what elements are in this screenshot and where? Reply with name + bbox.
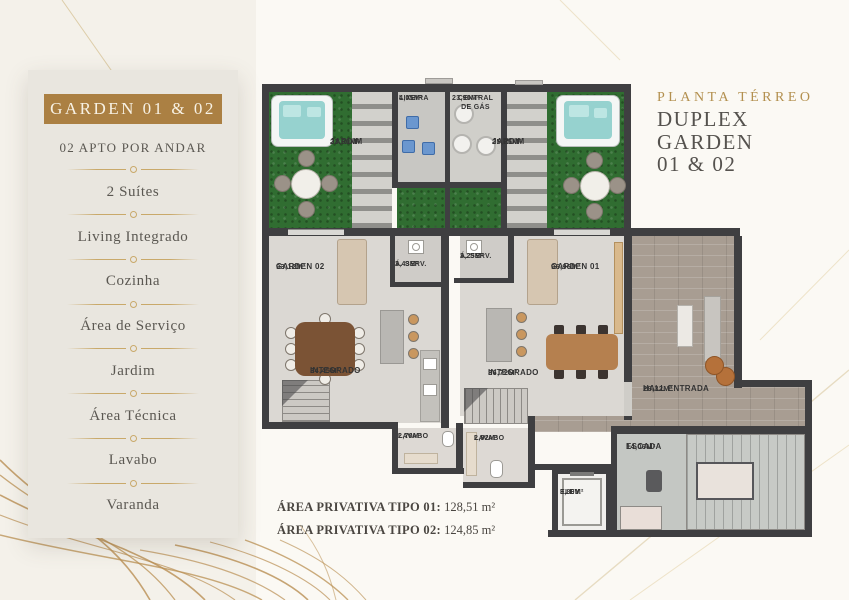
feature-item: Living Integrado (78, 229, 189, 246)
divider-ornament (67, 256, 198, 263)
elevator-door (570, 472, 594, 476)
wall (456, 423, 463, 473)
feature-item: Jardim (111, 363, 155, 380)
wall (805, 380, 812, 537)
garden-path-left (352, 92, 392, 229)
washing-machine (408, 240, 424, 254)
garden-chair (563, 177, 580, 194)
sideboard (614, 242, 623, 334)
wall (742, 380, 812, 387)
page: GARDEN 01 & 02 02 APTO POR ANDAR 2 Suíte… (0, 0, 849, 600)
divider-ornament (67, 211, 198, 218)
stool (516, 346, 527, 357)
garden-chair (321, 175, 338, 192)
divider-ornament (67, 390, 198, 397)
feature-item: 2 Suítes (107, 184, 160, 201)
feature-item: Cozinha (106, 273, 160, 290)
feature-item: Varanda (106, 497, 159, 514)
kitchen-island (380, 310, 404, 364)
door-gap (624, 382, 632, 416)
elevator-cab (562, 478, 602, 526)
hot-tub (271, 95, 333, 147)
sink (423, 358, 437, 370)
bench (677, 305, 693, 347)
wall (624, 84, 631, 236)
wall (392, 90, 398, 188)
floor-plan: JARDIM23,90M² LIXEIRA4,05M² CENTRAL DE G… (258, 82, 814, 544)
stairlift-icon (646, 470, 662, 492)
stair-landing (696, 462, 754, 500)
wall (262, 422, 398, 429)
door-gap (554, 229, 610, 235)
garden-chair (298, 201, 315, 218)
stool (408, 331, 419, 342)
console (704, 296, 721, 362)
room-lixeira (397, 90, 445, 184)
door-gap (288, 229, 344, 235)
dining-chair (598, 369, 608, 379)
garden-chair (298, 150, 315, 167)
garden-chair (274, 175, 291, 192)
private-area-summary: ÁREA PRIVATIVA TIPO 01: 128,51 m² ÁREA P… (277, 496, 495, 542)
dining-chair (576, 369, 586, 379)
garden-path-right (507, 92, 547, 229)
feature-item: Área Técnica (89, 408, 176, 425)
grass-patch-right (450, 188, 501, 229)
sofa (337, 239, 367, 305)
divider-ornament (67, 345, 198, 352)
stool (408, 314, 419, 325)
dining-chair (554, 369, 564, 379)
pouf (705, 356, 724, 375)
wall (528, 416, 535, 488)
wall (552, 468, 558, 534)
garden-chair (586, 152, 603, 169)
vanity (404, 453, 438, 464)
divider-ornament (67, 435, 198, 442)
stair-landing (620, 506, 662, 530)
kitchen-island (486, 308, 512, 362)
wall-cap (515, 80, 543, 85)
stool (516, 329, 527, 340)
feature-item: Lavabo (109, 452, 158, 469)
wall (392, 422, 398, 472)
wall (611, 426, 805, 434)
private-area-line-2: ÁREA PRIVATIVA TIPO 02: 124,85 m² (277, 519, 495, 542)
private-area-line-1: ÁREA PRIVATIVA TIPO 01: 128,51 m² (277, 496, 495, 519)
trash-bin (406, 116, 419, 129)
wall (445, 90, 450, 188)
divider-ornament (67, 166, 198, 173)
grass-patch-left (397, 188, 445, 229)
divider-ornament (67, 301, 198, 308)
wall (392, 468, 464, 474)
wall (454, 278, 514, 283)
garden-table (580, 171, 610, 201)
stool (516, 312, 527, 323)
wall (508, 236, 514, 282)
wall (463, 482, 535, 488)
stove (423, 384, 437, 396)
wall (441, 236, 449, 428)
garden-chair (609, 177, 626, 194)
toilet (442, 431, 454, 447)
wall (548, 530, 812, 537)
trash-bin (402, 140, 415, 153)
wall (445, 188, 450, 229)
wall-cap (425, 78, 453, 84)
stool (408, 348, 419, 359)
trash-bin (422, 142, 435, 155)
feature-card: GARDEN 01 & 02 02 APTO POR ANDAR 2 Suíte… (28, 70, 238, 538)
dining-table (546, 334, 618, 370)
divider-ornament (67, 480, 198, 487)
card-header: GARDEN 01 & 02 (44, 94, 222, 124)
garden-table (291, 169, 321, 199)
card-feature-list: 02 APTO POR ANDAR 2 Suítes Living Integr… (42, 140, 224, 514)
hot-tub (556, 95, 620, 147)
wall (501, 90, 507, 230)
wall (734, 236, 742, 388)
wall (606, 468, 613, 534)
feature-item: 02 APTO POR ANDAR (60, 140, 207, 156)
toilet (490, 460, 503, 478)
feature-item: Área de Serviço (80, 318, 186, 335)
wall (262, 84, 269, 429)
gas-cylinder (452, 134, 472, 154)
wall (390, 282, 446, 287)
garden-chair (586, 203, 603, 220)
